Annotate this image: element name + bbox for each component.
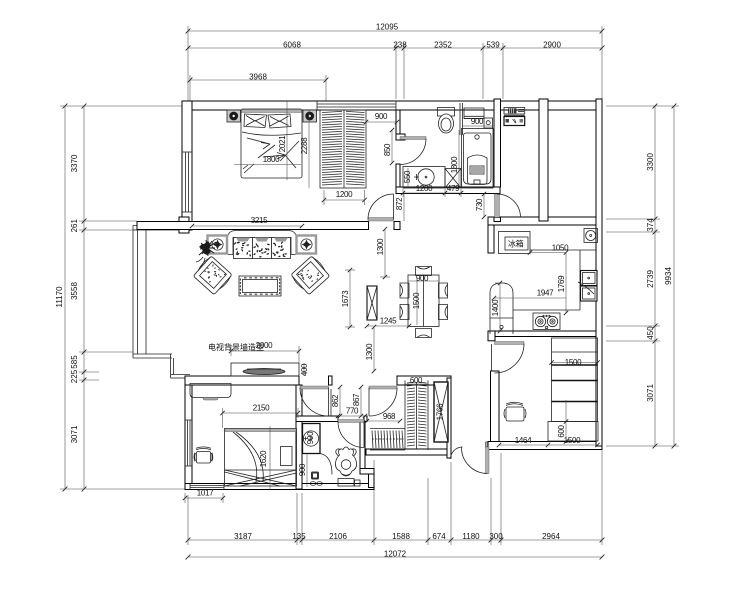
svg-text:1500: 1500 xyxy=(412,292,421,309)
svg-text:1245: 1245 xyxy=(380,317,397,326)
svg-text:900: 900 xyxy=(416,274,429,283)
svg-text:600: 600 xyxy=(557,424,566,437)
svg-text:225: 225 xyxy=(70,369,79,383)
svg-text:3071: 3071 xyxy=(646,384,655,402)
svg-text:1017: 1017 xyxy=(197,489,214,498)
svg-text:135: 135 xyxy=(292,532,306,541)
svg-text:冰箱: 冰箱 xyxy=(508,239,524,249)
svg-text:900: 900 xyxy=(375,112,388,121)
svg-text:2739: 2739 xyxy=(646,270,655,288)
svg-text:2106: 2106 xyxy=(329,532,347,541)
svg-text:730: 730 xyxy=(475,198,484,211)
svg-text:1673: 1673 xyxy=(341,290,350,307)
svg-text:585: 585 xyxy=(70,355,79,369)
svg-text:374: 374 xyxy=(646,218,655,232)
svg-text:1464: 1464 xyxy=(515,436,532,445)
svg-text:2000: 2000 xyxy=(256,341,273,350)
svg-text:850: 850 xyxy=(383,143,392,156)
svg-text:1400: 1400 xyxy=(491,299,500,316)
svg-text:9934: 9934 xyxy=(664,267,673,285)
svg-text:1947: 1947 xyxy=(537,289,554,298)
svg-text:539: 539 xyxy=(486,40,500,49)
svg-text:261: 261 xyxy=(70,218,79,232)
svg-text:550: 550 xyxy=(403,170,412,183)
svg-text:400: 400 xyxy=(300,363,309,376)
svg-text:3968: 3968 xyxy=(249,72,267,81)
svg-text:2900: 2900 xyxy=(543,40,561,49)
svg-text:600: 600 xyxy=(410,376,423,385)
svg-text:770: 770 xyxy=(346,407,359,416)
svg-text:862: 862 xyxy=(331,394,340,407)
svg-text:1300: 1300 xyxy=(376,238,385,255)
svg-text:1300: 1300 xyxy=(365,343,374,360)
svg-text:12095: 12095 xyxy=(376,23,399,32)
svg-text:2150: 2150 xyxy=(253,404,270,413)
svg-text:3215: 3215 xyxy=(251,216,268,225)
svg-text:300: 300 xyxy=(489,532,503,541)
svg-text:1200: 1200 xyxy=(336,190,353,199)
svg-text:1766: 1766 xyxy=(436,403,445,420)
svg-text:12072: 12072 xyxy=(384,549,407,558)
svg-text:674: 674 xyxy=(432,532,446,541)
svg-text:2964: 2964 xyxy=(542,532,560,541)
svg-text:867: 867 xyxy=(352,393,361,406)
svg-text:450: 450 xyxy=(646,326,655,340)
svg-text:1800: 1800 xyxy=(263,155,280,164)
svg-text:1200: 1200 xyxy=(416,184,433,193)
svg-text:3071: 3071 xyxy=(70,425,79,443)
svg-text:3187: 3187 xyxy=(234,532,252,541)
svg-text:3558: 3558 xyxy=(70,282,79,300)
svg-text:1050: 1050 xyxy=(552,244,569,253)
svg-text:1620: 1620 xyxy=(259,450,268,467)
svg-text:1800: 1800 xyxy=(450,156,459,173)
svg-text:3370: 3370 xyxy=(70,154,79,172)
svg-text:1180: 1180 xyxy=(462,532,480,541)
svg-text:3300: 3300 xyxy=(646,153,655,171)
svg-text:1500: 1500 xyxy=(565,358,582,367)
svg-text:11170: 11170 xyxy=(55,286,64,308)
svg-text:900: 900 xyxy=(306,431,315,444)
svg-text:900: 900 xyxy=(471,117,484,126)
svg-text:1769: 1769 xyxy=(557,275,566,292)
svg-text:872: 872 xyxy=(395,197,404,210)
svg-text:6068: 6068 xyxy=(283,40,301,49)
svg-text:900: 900 xyxy=(298,463,307,476)
svg-text:479: 479 xyxy=(447,184,460,193)
svg-text:1588: 1588 xyxy=(392,532,410,541)
svg-text:2288: 2288 xyxy=(300,137,309,154)
svg-text:968: 968 xyxy=(383,412,396,421)
svg-text:2021: 2021 xyxy=(278,135,287,152)
svg-text:238: 238 xyxy=(393,40,407,49)
svg-text:2352: 2352 xyxy=(434,40,452,49)
